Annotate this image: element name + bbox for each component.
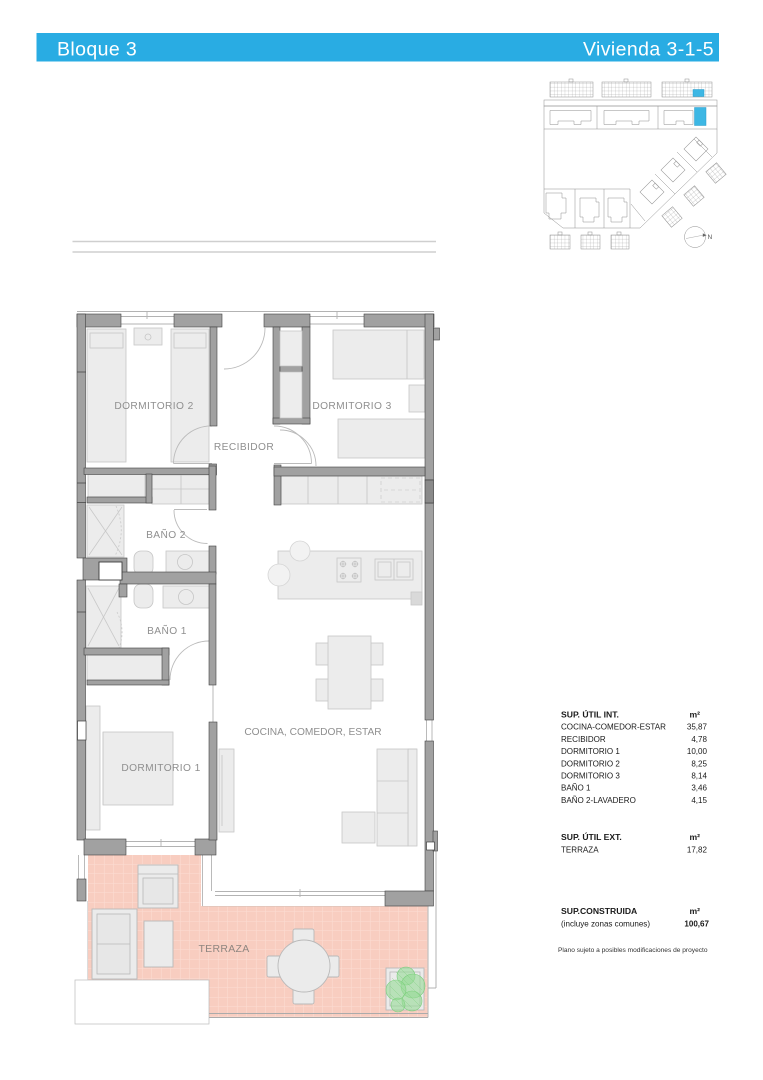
svg-text:DORMITORIO 1: DORMITORIO 1 — [561, 747, 620, 756]
svg-text:100,67: 100,67 — [684, 920, 709, 929]
svg-text:Plano sujeto a posibles modifi: Plano sujeto a posibles modificaciones d… — [558, 947, 708, 954]
svg-text:TERRAZA: TERRAZA — [561, 846, 599, 855]
svg-text:BAÑO 2: BAÑO 2 — [146, 528, 186, 541]
svg-text:RECIBIDOR: RECIBIDOR — [561, 735, 606, 744]
svg-text:4,15: 4,15 — [691, 796, 707, 805]
svg-text:Vivienda 3-1-5: Vivienda 3-1-5 — [583, 39, 714, 61]
svg-text:m²: m² — [689, 832, 700, 842]
svg-text:35,87: 35,87 — [687, 723, 708, 732]
svg-text:BAÑO 2-LAVADERO: BAÑO 2-LAVADERO — [561, 796, 636, 805]
svg-text:m²: m² — [689, 906, 700, 916]
svg-text:TERRAZA: TERRAZA — [198, 943, 249, 955]
svg-text:m²: m² — [689, 710, 700, 720]
svg-text:4,78: 4,78 — [691, 735, 707, 744]
svg-text:SUP. ÚTIL INT.: SUP. ÚTIL INT. — [561, 709, 619, 720]
svg-text:DORMITORIO 3: DORMITORIO 3 — [312, 401, 391, 412]
svg-text:Bloque 3: Bloque 3 — [57, 39, 137, 61]
svg-text:DORMITORIO 3: DORMITORIO 3 — [561, 772, 620, 781]
svg-text:SUP. ÚTIL EXT.: SUP. ÚTIL EXT. — [561, 831, 622, 842]
svg-text:8,25: 8,25 — [691, 759, 707, 768]
svg-text:N: N — [708, 234, 713, 241]
svg-text:COCINA-COMEDOR-ESTAR: COCINA-COMEDOR-ESTAR — [561, 723, 666, 732]
svg-text:10,00: 10,00 — [687, 747, 708, 756]
svg-text:8,14: 8,14 — [691, 772, 707, 781]
svg-text:COCINA, COMEDOR, ESTAR: COCINA, COMEDOR, ESTAR — [244, 727, 381, 738]
svg-text:SUP.CONSTRUIDA: SUP.CONSTRUIDA — [561, 906, 637, 916]
svg-text:RECIBIDOR: RECIBIDOR — [214, 442, 274, 453]
svg-text:BAÑO 1: BAÑO 1 — [147, 624, 187, 637]
svg-text:DORMITORIO 1: DORMITORIO 1 — [121, 763, 200, 774]
svg-text:BAÑO 1: BAÑO 1 — [561, 784, 591, 793]
svg-text:17,82: 17,82 — [687, 846, 708, 855]
svg-text:DORMITORIO 2: DORMITORIO 2 — [114, 401, 193, 412]
svg-text:(incluye zonas comunes): (incluye zonas comunes) — [561, 920, 650, 929]
svg-text:DORMITORIO 2: DORMITORIO 2 — [561, 759, 620, 768]
svg-text:3,46: 3,46 — [691, 784, 707, 793]
